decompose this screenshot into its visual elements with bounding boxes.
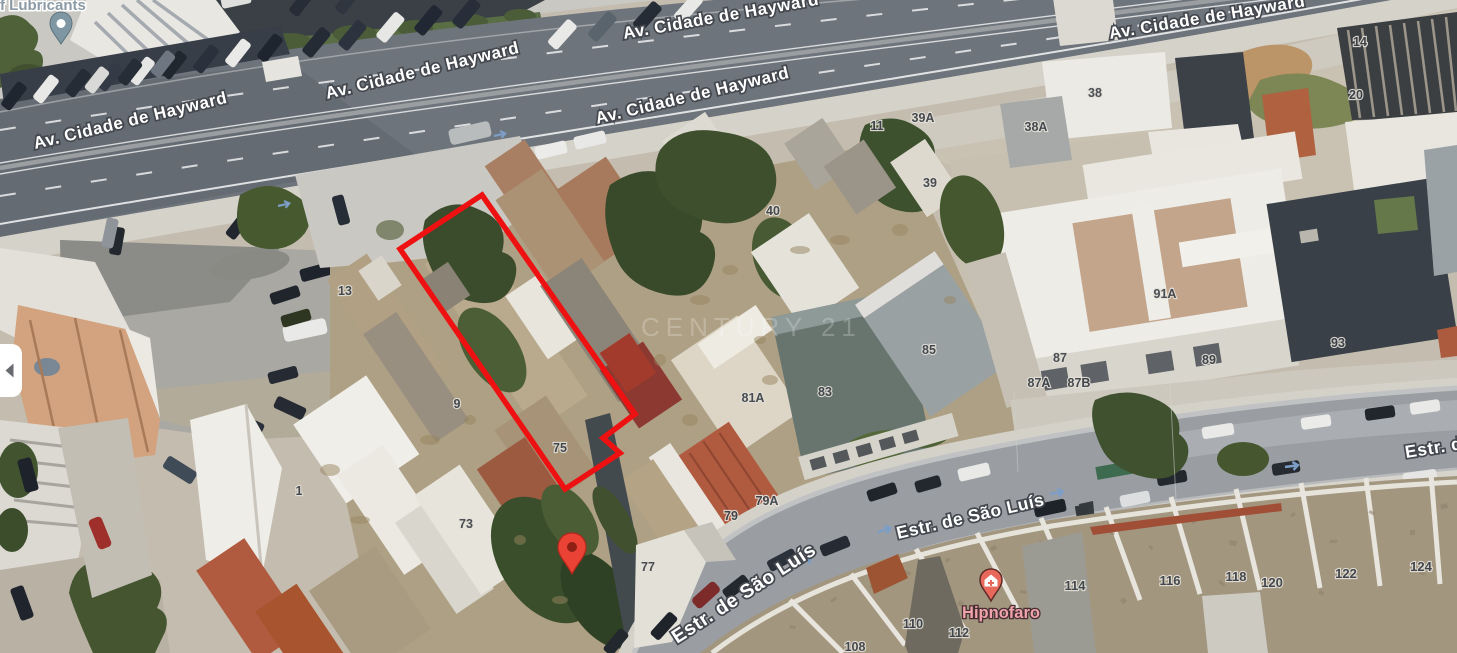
svg-text:114: 114 <box>1065 578 1087 593</box>
svg-text:77: 77 <box>641 560 655 574</box>
svg-text:38A: 38A <box>1025 120 1048 134</box>
svg-text:91A: 91A <box>1154 287 1177 301</box>
svg-text:116: 116 <box>1160 573 1181 588</box>
svg-text:40: 40 <box>766 204 780 218</box>
svg-text:79: 79 <box>724 509 738 523</box>
svg-text:93: 93 <box>1331 336 1345 350</box>
svg-text:120: 120 <box>1261 575 1283 590</box>
svg-text:9: 9 <box>454 397 461 411</box>
svg-text:118: 118 <box>1226 569 1247 584</box>
svg-text:20: 20 <box>1349 88 1363 102</box>
svg-text:39A: 39A <box>912 111 935 125</box>
svg-text:39: 39 <box>923 176 937 190</box>
svg-text:13: 13 <box>338 284 352 298</box>
svg-text:108: 108 <box>845 640 866 653</box>
svg-text:1: 1 <box>296 484 303 498</box>
svg-text:124: 124 <box>1410 559 1432 574</box>
svg-text:CENTURY 21: CENTURY 21 <box>641 312 862 342</box>
svg-text:79A: 79A <box>756 494 779 508</box>
svg-text:89: 89 <box>1202 353 1216 367</box>
svg-text:75: 75 <box>553 441 567 455</box>
svg-text:110: 110 <box>903 617 923 631</box>
svg-text:83: 83 <box>818 385 832 399</box>
svg-text:87A: 87A <box>1028 376 1051 390</box>
svg-text:112: 112 <box>949 626 969 640</box>
svg-text:11: 11 <box>870 119 883 133</box>
svg-text:38: 38 <box>1088 86 1102 100</box>
svg-text:f Lubricants: f Lubricants <box>0 0 86 14</box>
svg-text:87: 87 <box>1053 351 1067 365</box>
svg-text:73: 73 <box>459 517 473 531</box>
svg-text:122: 122 <box>1335 566 1357 581</box>
svg-text:87B: 87B <box>1068 376 1091 390</box>
svg-text:81A: 81A <box>742 391 765 405</box>
svg-text:85: 85 <box>922 343 936 357</box>
svg-text:14: 14 <box>1353 35 1367 49</box>
svg-text:Hipnofaro: Hipnofaro <box>962 604 1040 622</box>
